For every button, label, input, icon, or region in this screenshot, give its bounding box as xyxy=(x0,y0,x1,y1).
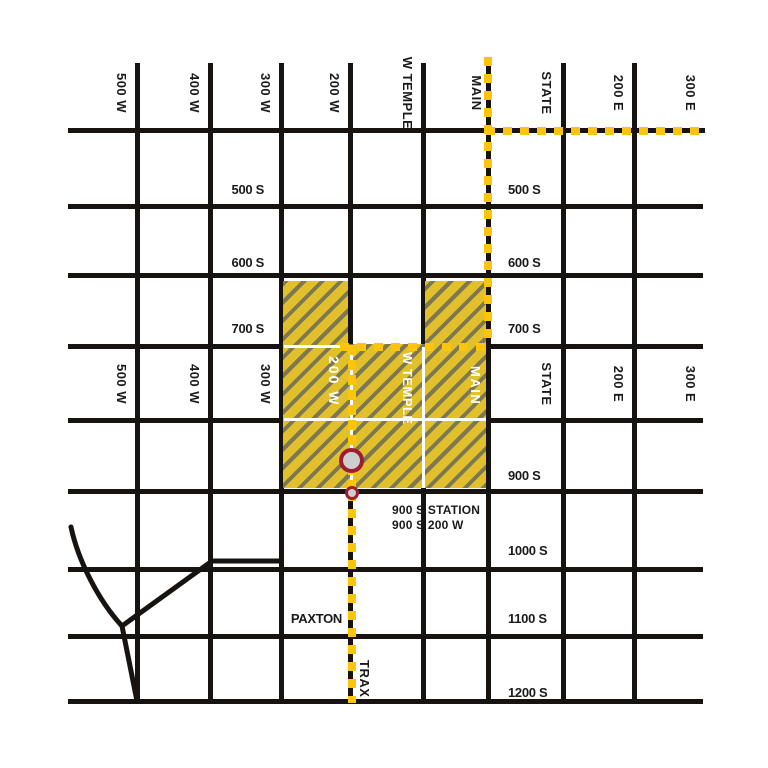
street-label-300w-mid: 300 W xyxy=(258,364,273,404)
street-label-700s-left: 700 S xyxy=(214,322,264,336)
inner-street-800s xyxy=(284,418,486,421)
street-label-400w-top: 400 W xyxy=(187,73,202,113)
trax-route-200w-south xyxy=(348,492,356,703)
station-callout-line2: 900 S 200 W xyxy=(392,518,464,533)
street-line-600s xyxy=(68,273,703,278)
street-label-state-mid: STATE xyxy=(539,362,554,405)
street-label-200w-top: 200 W xyxy=(327,73,342,113)
street-label-1000s: 1000 S xyxy=(508,544,547,558)
street-label-900s-right: 900 S xyxy=(508,469,540,483)
street-label-main-study: MAIN xyxy=(468,366,483,405)
street-label-300e-top: 300 E xyxy=(683,75,698,111)
street-line-200w-upper xyxy=(348,63,353,349)
street-label-paxton: PAXTON xyxy=(282,612,342,626)
street-line-500s xyxy=(68,204,703,209)
transit-map: 500 W 400 W 300 W 200 W W TEMPLE MAIN ST… xyxy=(0,0,768,768)
street-label-200e-mid: 200 E xyxy=(611,366,626,402)
street-label-700s-right: 700 S xyxy=(508,322,540,336)
street-label-200e-top: 200 E xyxy=(611,75,626,111)
trax-route-400s xyxy=(486,127,705,135)
street-line-state xyxy=(561,63,566,704)
street-label-500s-left: 500 S xyxy=(214,183,264,197)
street-label-500w-top: 500 W xyxy=(114,73,129,113)
station-marker-primary xyxy=(339,448,364,473)
street-line-900s xyxy=(68,489,703,494)
street-label-wtemple-study: W TEMPLE xyxy=(400,352,415,425)
street-label-600s-right: 600 S xyxy=(508,256,540,270)
street-label-200w-study: 200 W xyxy=(326,356,342,406)
street-line-400w xyxy=(208,63,213,704)
street-label-1100s: 1100 S xyxy=(508,612,547,626)
street-label-300e-mid: 300 E xyxy=(683,366,698,402)
station-marker-secondary xyxy=(345,486,359,500)
street-line-1000s xyxy=(68,567,703,572)
trax-route-main-street xyxy=(484,57,492,346)
street-label-400w-mid: 400 W xyxy=(187,364,202,404)
inner-street-wtemple xyxy=(422,347,425,488)
street-label-1200s: 1200 S xyxy=(508,686,547,700)
street-line-1200s xyxy=(68,699,703,704)
street-label-500s-right: 500 S xyxy=(508,183,540,197)
street-line-1100s xyxy=(68,634,703,639)
street-label-wtemple-top: W TEMPLE xyxy=(400,57,415,130)
street-line-500w xyxy=(135,63,140,704)
street-label-500w-mid: 500 W xyxy=(114,364,129,404)
inner-street-700s xyxy=(284,345,341,348)
street-line-200e xyxy=(632,63,637,704)
street-label-state-top: STATE xyxy=(539,71,554,114)
trax-route-700s xyxy=(340,343,488,351)
station-callout-line1: 900 S STATION xyxy=(392,503,480,518)
trax-label: TRAX xyxy=(357,660,372,697)
street-label-main-top: MAIN xyxy=(469,75,484,110)
street-label-600s-left: 600 S xyxy=(214,256,264,270)
street-label-300w-top: 300 W xyxy=(258,73,273,113)
